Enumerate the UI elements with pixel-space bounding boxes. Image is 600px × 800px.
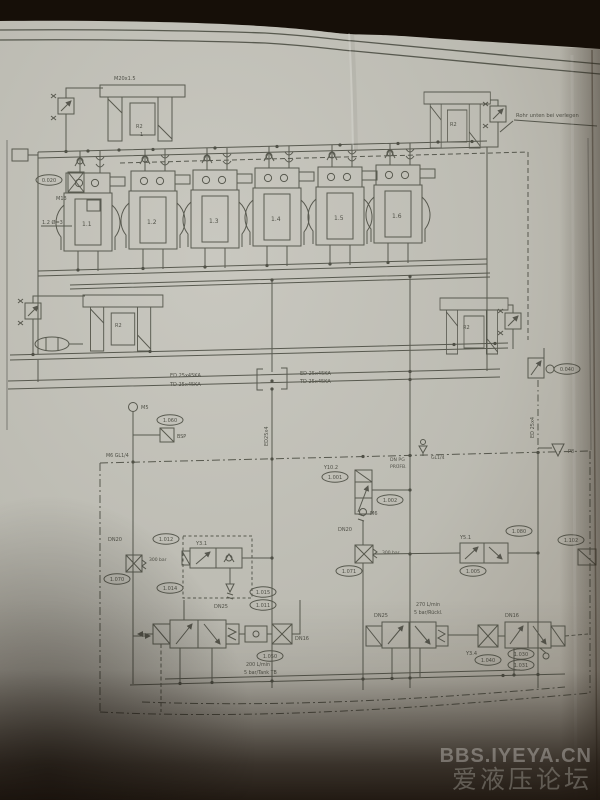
schematic-photo: M20x1.5 R2 1 R2 Rohr unten bei verlegen — [0, 0, 600, 800]
corner-shadow — [0, 0, 600, 800]
photo-of-hydraulic-schematic: M20x1.5 R2 1 R2 Rohr unten bei verlegen — [0, 0, 600, 800]
